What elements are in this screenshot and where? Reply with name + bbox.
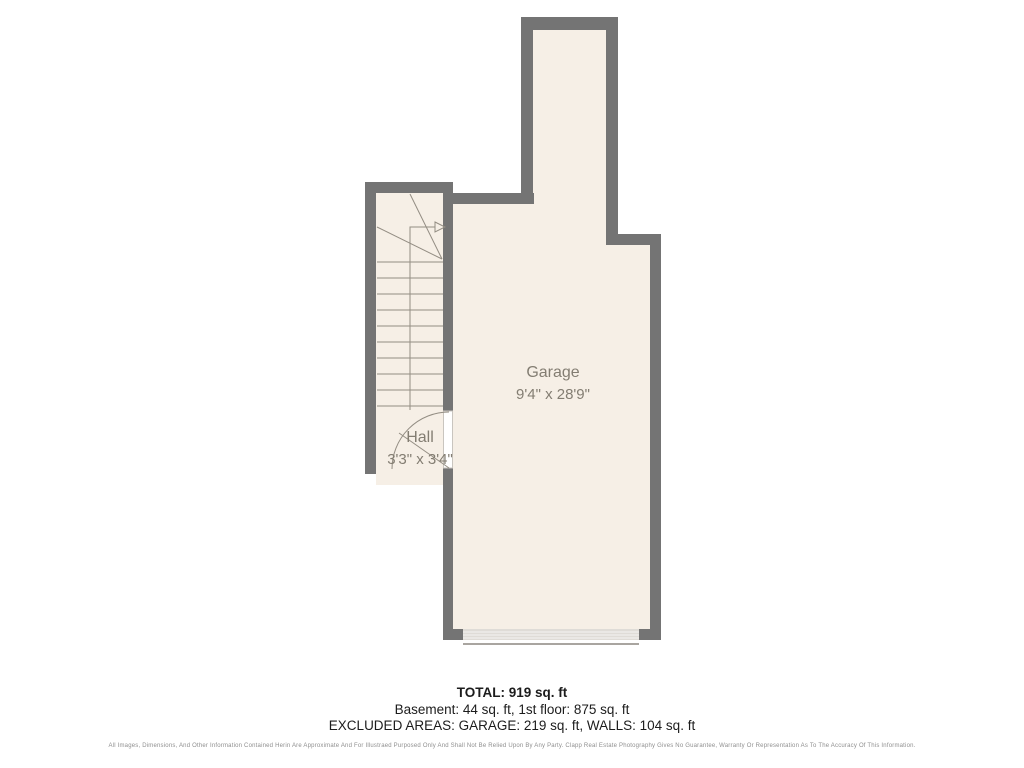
garage-floor (453, 29, 650, 629)
wall-garage-connector (444, 193, 534, 204)
wall-garage-right (650, 234, 661, 640)
wall-garage-narrow-right (606, 17, 618, 245)
total-area-text: TOTAL: 919 sq. ft (0, 685, 1024, 702)
wall-garage-bottom-right (639, 629, 661, 640)
wall-garage-narrow-left (521, 17, 533, 204)
excluded-areas-text: EXCLUDED AREAS: GARAGE: 219 sq. ft, WALL… (0, 718, 1024, 735)
wall-shared-lower (443, 468, 453, 640)
disclaimer-text: All Images, Dimensions, And Other Inform… (0, 743, 1024, 749)
floorplan-drawing: Garage 9'4" x 28'9" Hall 3'3" x 3'4" (0, 0, 1024, 768)
wall-stair-left (365, 182, 376, 474)
garage-dimensions: 9'4" x 28'9" (516, 386, 590, 403)
hall-label: Hall (406, 429, 434, 446)
floor-areas-text: Basement: 44 sq. ft, 1st floor: 875 sq. … (0, 702, 1024, 719)
hall-dimensions: 3'3" x 3'4" (387, 451, 453, 468)
area-summary: TOTAL: 919 sq. ft Basement: 44 sq. ft, 1… (0, 685, 1024, 735)
wall-stair-top (365, 182, 453, 193)
floorplan-page: Garage 9'4" x 28'9" Hall 3'3" x 3'4" TOT… (0, 0, 1024, 768)
wall-shared-upper (443, 182, 453, 411)
wall-garage-top (521, 17, 618, 30)
garage-label: Garage (526, 364, 579, 381)
